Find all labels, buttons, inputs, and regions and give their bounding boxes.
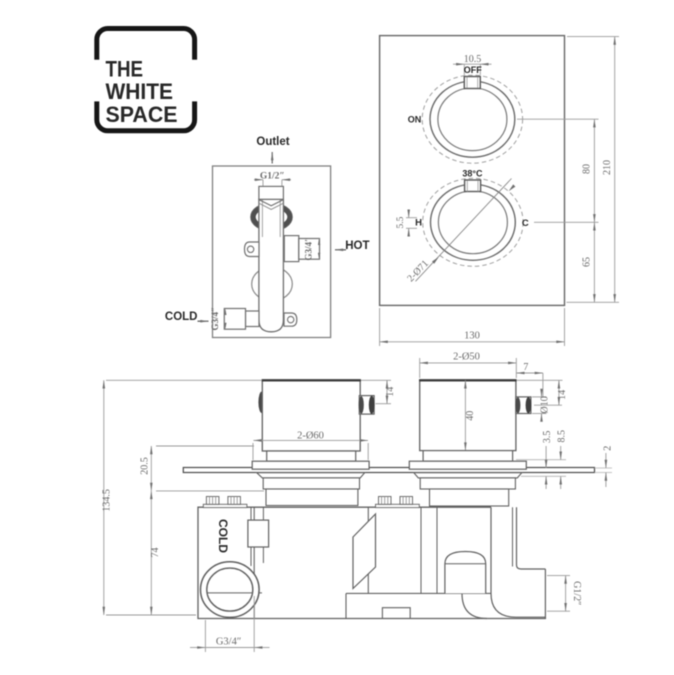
svg-text:130: 130	[464, 331, 480, 342]
svg-text:14: 14	[557, 390, 568, 400]
svg-text:80: 80	[582, 164, 593, 174]
svg-text:210: 210	[602, 160, 613, 175]
svg-text:7: 7	[523, 362, 528, 373]
svg-text:C: C	[522, 218, 529, 229]
svg-text:2-Ø50: 2-Ø50	[453, 352, 480, 363]
svg-text:G3/4″: G3/4″	[210, 307, 220, 331]
svg-text:38°C: 38°C	[462, 169, 483, 179]
svg-text:134.5: 134.5	[101, 489, 112, 512]
svg-text:G1/2″: G1/2″	[571, 581, 582, 605]
svg-text:3.5: 3.5	[542, 431, 553, 444]
svg-text:8.5: 8.5	[557, 430, 568, 443]
svg-text:WHITE: WHITE	[106, 79, 174, 104]
svg-text:20.5: 20.5	[140, 457, 151, 475]
svg-text:H: H	[415, 217, 422, 228]
svg-text:74: 74	[150, 548, 161, 558]
svg-text:OFF: OFF	[464, 65, 482, 75]
svg-text:SPACE: SPACE	[106, 102, 178, 127]
svg-text:THE: THE	[106, 57, 144, 82]
svg-text:14: 14	[385, 387, 396, 397]
svg-text:40: 40	[465, 411, 476, 421]
svg-text:2: 2	[603, 446, 614, 451]
svg-text:10.5: 10.5	[464, 54, 482, 65]
svg-text:ON: ON	[408, 114, 422, 124]
svg-text:G3/4″: G3/4″	[304, 237, 314, 261]
svg-text:Outlet: Outlet	[256, 136, 289, 148]
svg-text:COLD: COLD	[216, 519, 230, 553]
svg-text:COLD: COLD	[165, 311, 198, 323]
svg-text:5.5: 5.5	[396, 216, 406, 228]
svg-text:2-Ø60: 2-Ø60	[297, 430, 324, 441]
svg-text:G1/2″: G1/2″	[260, 171, 285, 181]
svg-text:HOT: HOT	[345, 240, 369, 252]
svg-text:G3/4″: G3/4″	[216, 637, 241, 648]
svg-text:65: 65	[582, 257, 593, 267]
